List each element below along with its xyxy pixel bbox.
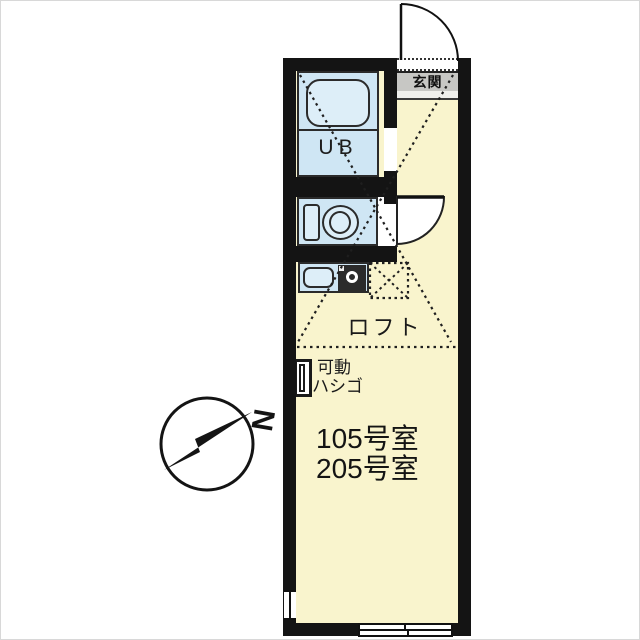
unit-bath-label: UB	[299, 137, 377, 158]
entrance-step	[397, 91, 458, 100]
window-pane-divider	[407, 630, 409, 635]
room-number-105: 105号室	[316, 424, 419, 454]
compass: N	[161, 398, 281, 490]
bathtub-icon	[306, 79, 370, 127]
kitchen-sink-icon	[303, 267, 334, 288]
room-number-205: 205号室	[316, 454, 419, 484]
loft-label: ロフト	[337, 317, 433, 339]
ladder-icon	[294, 359, 312, 397]
compass-circle	[161, 398, 253, 490]
compass-north-label: N	[244, 406, 280, 433]
window-pane-line	[289, 592, 291, 618]
compass-arrow-icon	[164, 412, 252, 470]
window-pane-divider	[404, 625, 406, 630]
wall-top	[283, 58, 397, 71]
toilet-bowl-inner-line	[329, 211, 351, 234]
room-numbers: 105号室 205号室	[316, 424, 419, 484]
wall-left	[283, 58, 296, 636]
bathtub-deck-line	[299, 129, 377, 131]
entrance-label: 玄関	[413, 75, 443, 89]
toilet-door-opening	[378, 197, 397, 246]
entrance-door-opening	[397, 58, 458, 71]
entrance-area: 玄関	[397, 71, 458, 91]
window-left-wall	[284, 590, 296, 620]
ladder-inner-line	[299, 364, 305, 392]
kitchen-counter	[298, 262, 369, 293]
wall-toilet-kitchen	[289, 246, 397, 262]
burner-ring	[346, 271, 358, 283]
floor-plan-canvas: 玄関 UB	[0, 0, 640, 640]
movable-ladder-line1: 可動	[317, 358, 363, 377]
entrance-door-arc	[401, 4, 458, 61]
movable-ladder-label: 可動 ハシゴ	[317, 358, 363, 396]
unit-bath-room: UB	[297, 71, 379, 177]
ub-door-opening	[384, 128, 397, 171]
stove-burner-icon	[338, 265, 366, 291]
movable-ladder-line2: ハシゴ	[312, 377, 363, 396]
toilet-room	[297, 197, 378, 246]
burner-notch	[339, 266, 344, 271]
wall-ub-toilet	[289, 177, 397, 197]
wall-right	[458, 58, 471, 636]
window-bottom-wall	[358, 623, 453, 637]
toilet-tank-icon	[303, 204, 320, 241]
